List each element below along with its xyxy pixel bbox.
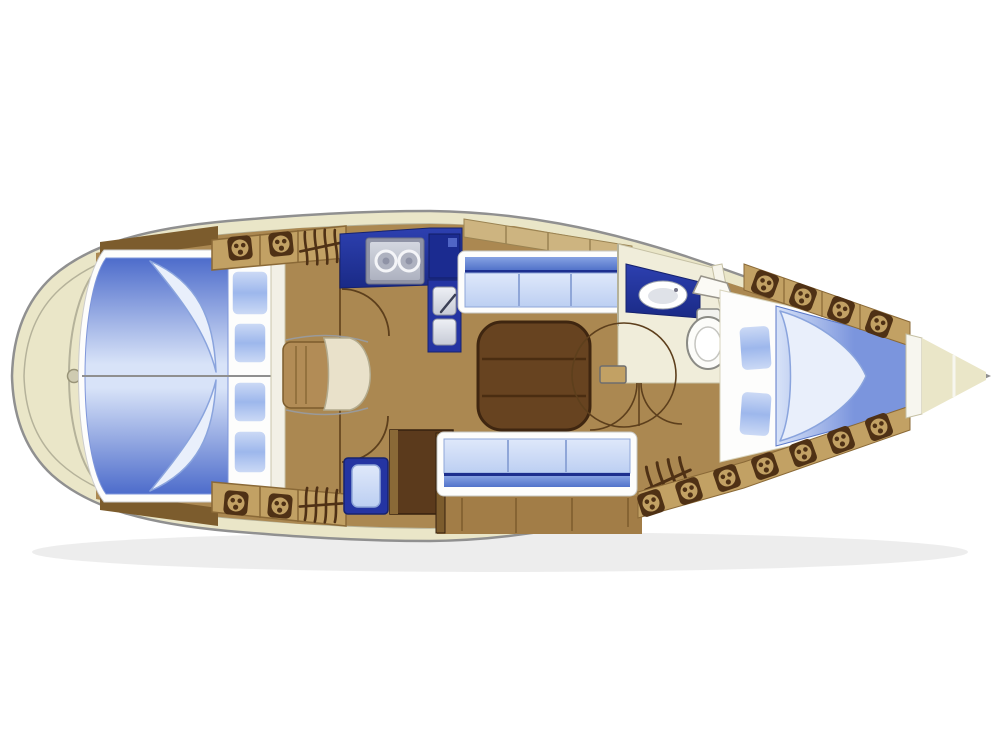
- head-sink-tap: [674, 288, 678, 292]
- stove-burner-center: [383, 258, 390, 265]
- settee-top-cushions: [465, 273, 628, 307]
- hatch-locker-icon: [223, 490, 249, 516]
- fridge-latch: [448, 238, 457, 247]
- aft-cabin: [79, 226, 285, 526]
- fore-pillow-1: [737, 324, 773, 372]
- galley-sink-icon: [433, 287, 456, 315]
- hatch-locker-icon: [268, 231, 294, 257]
- toilet-bowl: [695, 327, 721, 361]
- hatch-locker-icon: [267, 493, 293, 519]
- nav-desk-edge: [390, 430, 398, 514]
- aft-pillow-4: [233, 430, 267, 474]
- aft-pillow-1: [231, 270, 269, 316]
- aft-pillow-2: [233, 322, 267, 364]
- aft-pillow-3: [233, 381, 267, 423]
- nav-chair-cushion: [324, 338, 370, 410]
- saloon-table: [478, 322, 590, 430]
- under-settee-lockers: [437, 496, 642, 534]
- yacht-floor-plan: [0, 0, 1000, 750]
- bow-bulkhead: [906, 334, 922, 418]
- settee-bottom-cushions: [444, 439, 630, 473]
- hatch-locker-icon: [227, 235, 253, 261]
- settee-bottom-backrest: [444, 476, 630, 487]
- settee-top-backrest: [465, 257, 628, 270]
- galley-sink-icon: [433, 319, 456, 345]
- chart-seat-cushion: [352, 465, 380, 507]
- floor-plan-drawing: [0, 0, 1000, 750]
- head-door-handle: [600, 366, 626, 383]
- fore-pillow-2: [737, 390, 773, 438]
- stove-burner-center: [406, 258, 413, 265]
- head-sink-basin: [648, 288, 678, 304]
- settee-bottom-trimline: [444, 473, 630, 476]
